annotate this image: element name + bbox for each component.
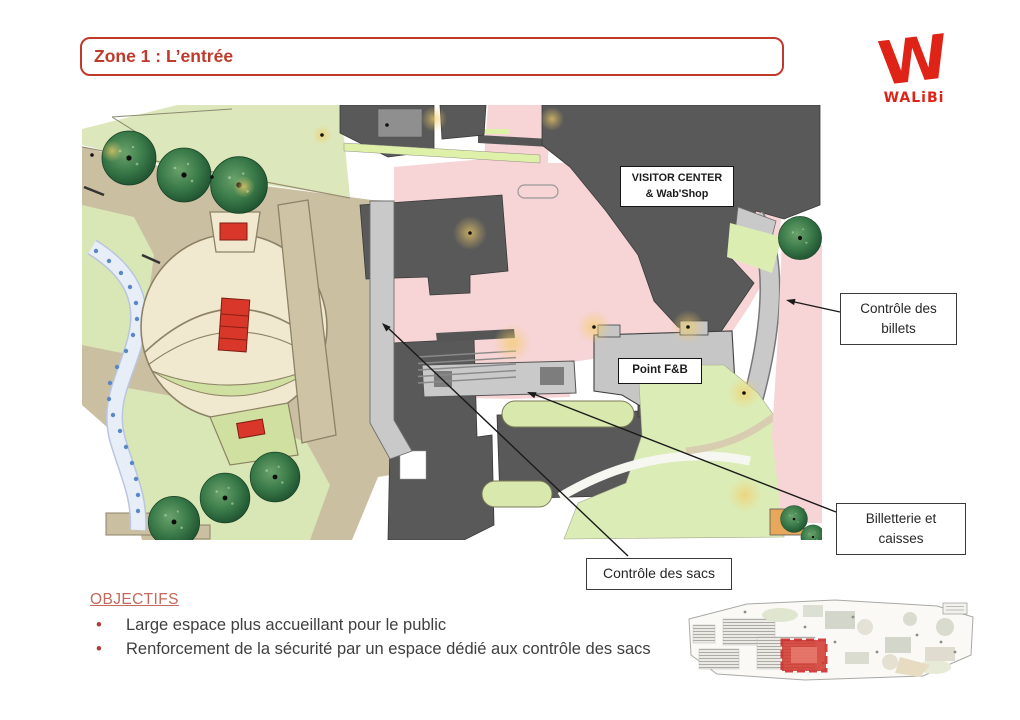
point-fb-label: Point F&B — [618, 358, 702, 384]
bullet-icon: • — [90, 614, 126, 638]
slide: { "slide": { "title": "Zone 1 : L’entrée… — [0, 0, 1020, 720]
objectives-list: • Large espace plus accueillant pour le … — [90, 614, 670, 662]
minimap-zone1-highlight — [782, 640, 826, 671]
bullet-icon: • — [90, 638, 126, 662]
callout-controle-billets: Contrôle des billets — [840, 293, 957, 345]
visitor-center-line1: VISITOR CENTER — [623, 171, 731, 187]
stage-red-top — [220, 223, 247, 240]
visitor-center-line2: & Wab'Shop — [623, 187, 731, 203]
objectives-section: OBJECTIFS • Large espace plus accueillan… — [90, 591, 670, 662]
objective-item: • Large espace plus accueillant pour le … — [90, 614, 670, 638]
objectives-heading: OBJECTIFS — [90, 591, 670, 609]
walibi-w-icon: W — [875, 27, 952, 96]
objective-item: • Renforcement de la sécurité par un esp… — [90, 638, 670, 662]
walibi-logo: W WALiBi — [864, 30, 964, 120]
slide-title-text: Zone 1 : L’entrée — [94, 46, 233, 66]
callout-billetterie-caisses: Billetterie et caisses — [836, 503, 966, 555]
callout-controle-sacs: Contrôle des sacs — [586, 558, 732, 590]
park-overview-minimap — [685, 597, 977, 685]
visitor-center-label: VISITOR CENTER & Wab'Shop — [620, 166, 734, 207]
stage-red-center — [218, 298, 250, 352]
slide-title: Zone 1 : L’entrée — [80, 37, 784, 76]
